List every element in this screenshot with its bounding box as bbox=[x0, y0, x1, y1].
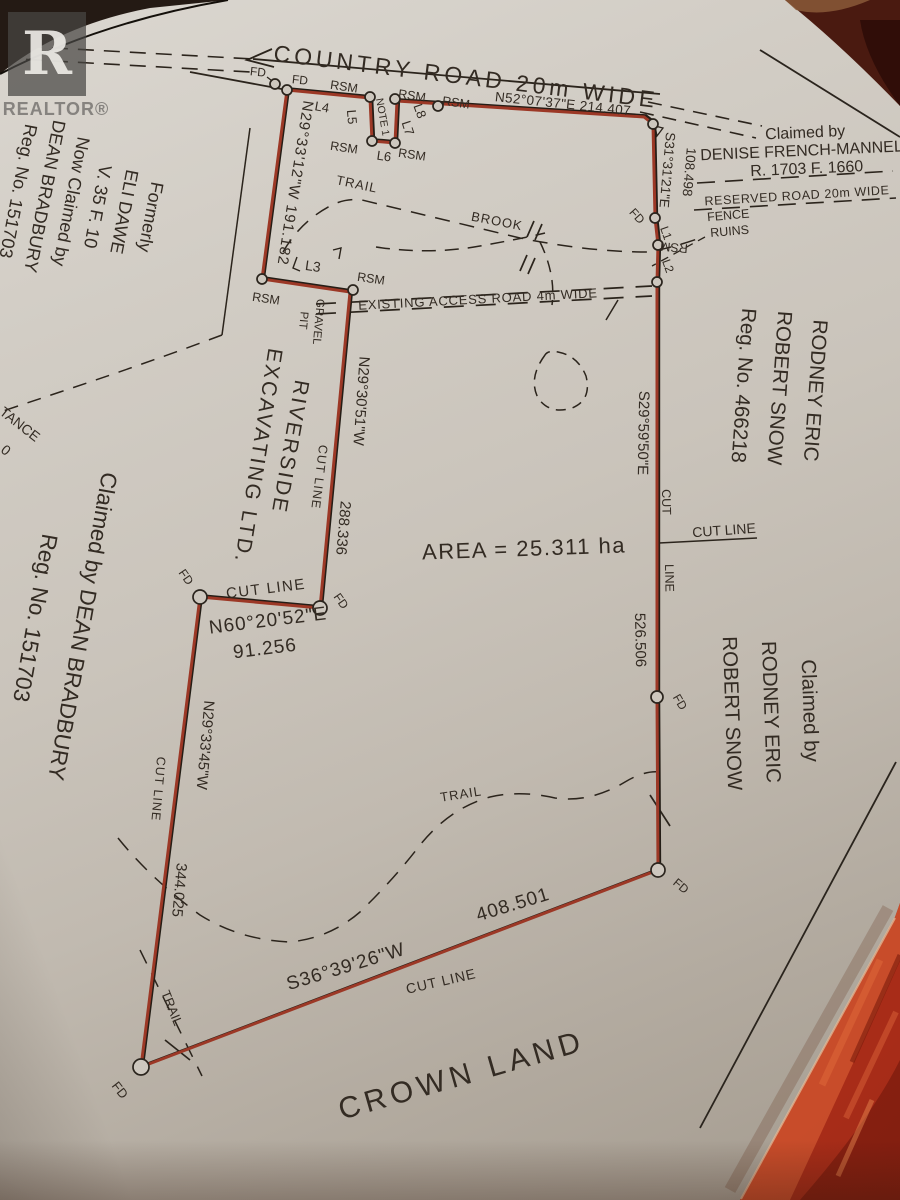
snow-reg-block: RODNEY ERIC ROBERT SNOW Reg. No. 466218 bbox=[720, 307, 838, 469]
lot-l6-label: L6 bbox=[376, 149, 392, 164]
survey-markers bbox=[133, 79, 665, 1075]
fd-label-2: FD bbox=[291, 73, 308, 87]
snow-claim-line2: RODNEY ERIC bbox=[748, 634, 792, 789]
ne-distance-label: 108.498 bbox=[680, 147, 698, 197]
gravel-pit-label: GRAVEL PIT bbox=[293, 297, 327, 345]
survey-plan-photo: COUNTRY ROAD 20m WIDE N52°07'37"E 214.40… bbox=[0, 0, 900, 1200]
fence-ruins-label: FENCE RUINS bbox=[707, 207, 752, 242]
realtor-logo-letter: R bbox=[22, 19, 72, 89]
line-label-east: LINE bbox=[663, 564, 676, 592]
fabric-top-right bbox=[785, 0, 900, 106]
cut-label-east: CUT bbox=[660, 489, 673, 515]
lot-l5-label: L5 bbox=[345, 109, 359, 125]
east-bearing-label: S29°59'50"E bbox=[635, 391, 651, 476]
formerly-owner-block: Formerly ELI DAWE V. 35 F. 10 Now Claime… bbox=[0, 113, 178, 296]
parcel-boundary bbox=[141, 88, 660, 1067]
cut-line-label-east: CUT LINE bbox=[692, 521, 756, 539]
lot-l3-label: L3 bbox=[304, 258, 321, 274]
snow-claim-line1: Claimed by bbox=[787, 633, 831, 788]
snow-claim-block: Claimed by RODNEY ERIC ROBERT SNOW bbox=[709, 633, 831, 791]
trail-lines bbox=[118, 200, 700, 1076]
realtor-logo-icon: R bbox=[8, 12, 86, 96]
fabric-bottom-right bbox=[730, 903, 900, 1200]
denise-claim-block: Claimed by DENISE FRENCH-MANNELL R. 1703… bbox=[699, 120, 900, 184]
snow-claim-line3: ROBERT SNOW bbox=[709, 636, 753, 791]
rsm-label-6: RSM bbox=[660, 240, 689, 255]
east-distance-label: 526.506 bbox=[632, 613, 648, 667]
brook-lines bbox=[376, 221, 587, 410]
realtor-watermark-text: REALTOR® bbox=[0, 99, 112, 120]
fd-label-1: FD bbox=[249, 65, 266, 79]
